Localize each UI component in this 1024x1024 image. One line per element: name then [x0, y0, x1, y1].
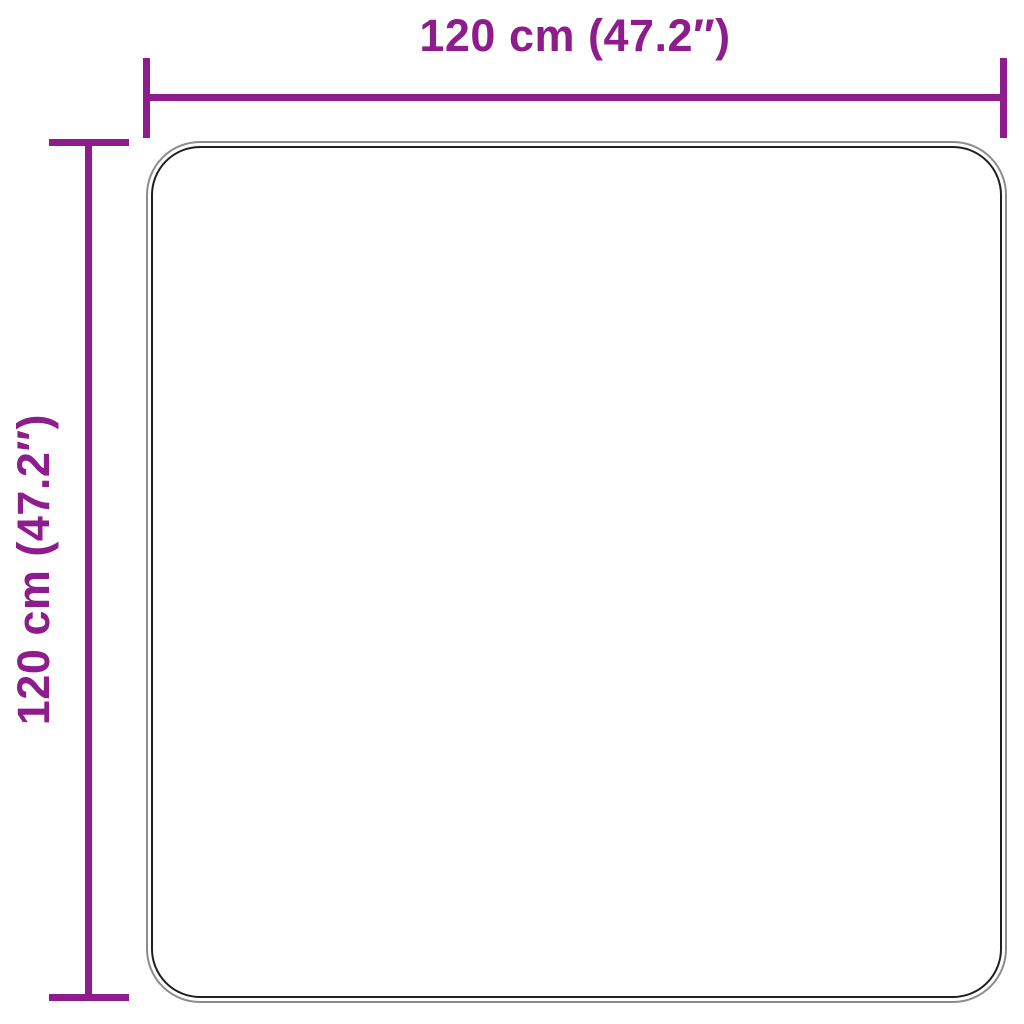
rug-outline-inner [151, 146, 1002, 998]
width-dimension-line [146, 58, 1004, 138]
width-dimension-label: 120 cm (47.2″) [419, 10, 730, 62]
width-dimension-tick-right [1000, 58, 1007, 138]
width-dimension-rule [146, 94, 1004, 101]
rug-outline-outer [146, 141, 1007, 1003]
dimension-diagram: 120 cm (47.2″) 120 cm (47.2″) [0, 0, 1024, 1024]
height-dimension-line [49, 142, 129, 998]
height-dimension-rule [85, 142, 92, 998]
height-dimension-tick-bottom [49, 994, 129, 1001]
